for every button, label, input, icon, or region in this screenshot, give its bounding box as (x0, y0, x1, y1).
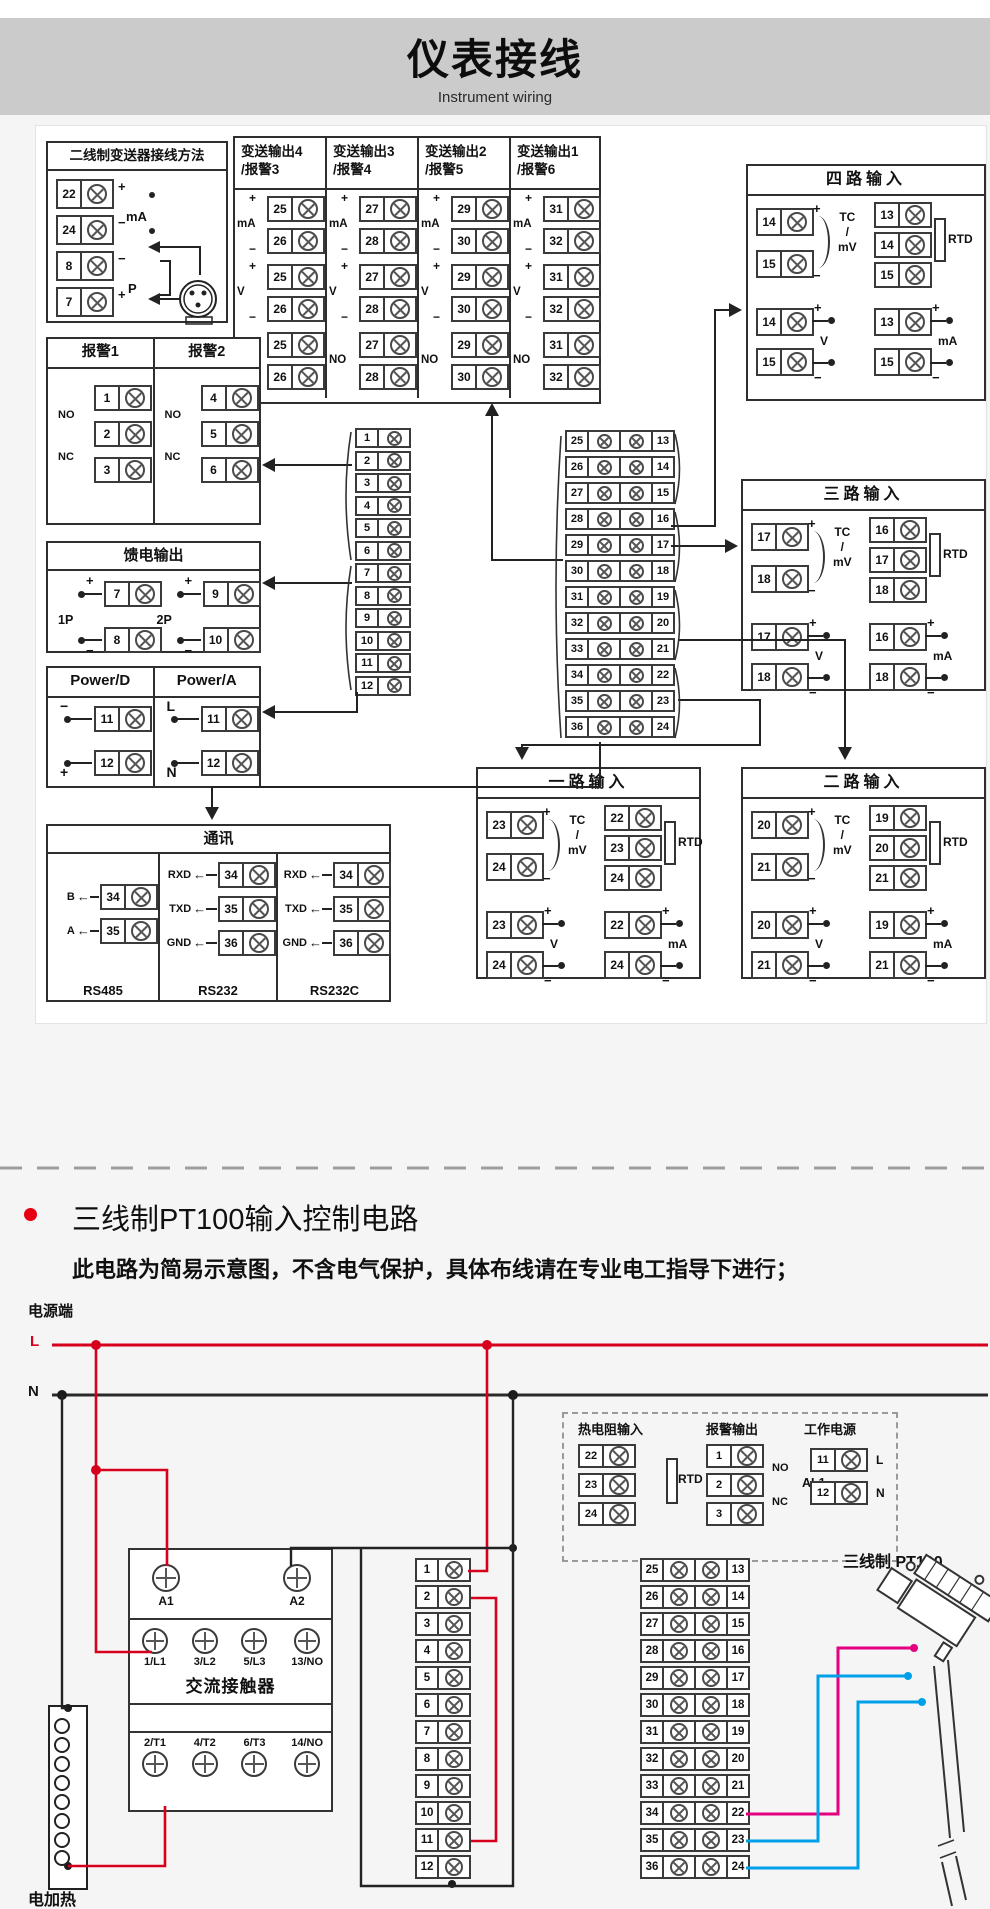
screw-icon (387, 588, 402, 603)
contactor-terminal: 14/NO (291, 1737, 323, 1777)
terminal: 14 (756, 308, 814, 336)
terminal-label: 1/L1 (144, 1656, 166, 1668)
screw-icon (900, 520, 920, 540)
terminal-label: 13/NO (291, 1656, 323, 1668)
rtd-label: RTD (948, 232, 973, 246)
tc-group: 14 15 + − TC / mV (756, 208, 814, 278)
strip-row: 28 16 (565, 508, 675, 530)
terminal-row: 12 N (810, 1481, 885, 1505)
screw-icon (702, 1723, 720, 1741)
terminal-number: 26 (565, 456, 589, 478)
strip-row: 3 (415, 1612, 471, 1636)
screw-icon (445, 1696, 463, 1714)
strip-row: 30 18 (565, 560, 675, 582)
page: 仪表接线 Instrument wiring 二线制变送器接线方法 22 + 2… (0, 0, 990, 1909)
sensor-label: 三线制 PT100 (843, 1548, 943, 1572)
screw-icon (597, 486, 612, 501)
screw-icon (670, 1723, 688, 1741)
screw-icon (517, 857, 537, 877)
terminal: 20 (869, 835, 927, 861)
screw-icon (629, 486, 644, 501)
screw-icon (737, 1504, 757, 1524)
contactor-terminal: 3/L2 (192, 1628, 218, 1668)
coil-label: A1 (158, 1594, 173, 1608)
rtd-group: 16 17 18 RTD (869, 517, 927, 603)
screw-icon (905, 205, 925, 225)
terminal-number: 15 (728, 1612, 750, 1636)
terminal: 24 (486, 951, 544, 979)
terminal-number: 16 (728, 1639, 750, 1663)
screw-icon (445, 1561, 463, 1579)
screw-icon (702, 1588, 720, 1606)
terminal: 14 (756, 208, 814, 236)
strip-row: 28 16 (640, 1639, 750, 1663)
terminal-number: 31 (640, 1720, 664, 1744)
resistor-icon (664, 821, 676, 865)
contactor-terminal: 6/T3 (241, 1737, 267, 1777)
output-terminal-row: 2/T1 4/T2 6/T3 14/NO (130, 1733, 331, 1777)
screw-icon (670, 1858, 688, 1876)
screw-icon (629, 460, 644, 475)
terminal-number: 12 (355, 676, 379, 696)
rtd-input-title: 热电阻输入 (578, 1419, 643, 1438)
terminal-number: 34 (565, 664, 589, 686)
screw-icon (670, 1615, 688, 1633)
strip-row: 2 (415, 1585, 471, 1609)
strip-row: 33 21 (640, 1774, 750, 1798)
terminal-number: 23 (653, 690, 675, 712)
terminal: 23 (486, 811, 544, 839)
screw-icon (702, 1750, 720, 1768)
terminal-row: 11 L (810, 1448, 885, 1472)
screw-icon (900, 627, 920, 647)
screw-icon (609, 1446, 629, 1466)
work-power-terminals: 11 L 12 N (810, 1448, 885, 1514)
screw-icon (597, 642, 612, 657)
coil-terminal: A2 (283, 1564, 311, 1608)
strip-row: 29 17 (640, 1666, 750, 1690)
heater-box (48, 1705, 88, 1890)
strip-row: 27 15 (640, 1612, 750, 1636)
screw-icon (387, 498, 402, 513)
terminal-number: 21 (728, 1774, 750, 1798)
terminal-number: 4 (355, 496, 379, 516)
screw-icon (905, 352, 925, 372)
screw-icon (445, 1831, 463, 1849)
screw-icon (294, 1751, 320, 1777)
v-group: 23 24 + V − (486, 911, 544, 979)
screw-icon (283, 1564, 311, 1592)
terminal-number: 12 (415, 1855, 439, 1879)
screw-icon (629, 668, 644, 683)
terminal: 22 (578, 1444, 636, 1468)
screw-icon (445, 1642, 463, 1660)
screw-icon (702, 1858, 720, 1876)
terminal-label: 5/L3 (243, 1656, 265, 1668)
terminal-number: 1 (415, 1558, 439, 1582)
terminal: 23 (486, 911, 544, 939)
terminal: 13 (874, 202, 932, 228)
terminal: 21 (751, 951, 809, 979)
screw-icon (702, 1669, 720, 1687)
strip-row: 32 20 (565, 612, 675, 634)
terminal-number: 22 (728, 1801, 750, 1825)
screw-icon (670, 1750, 688, 1768)
terminal-number: 8 (415, 1747, 439, 1771)
terminal-strip-1-12: 1 2 3 4 5 6 7 8 9 10 11 12 (415, 1558, 471, 1882)
screw-icon (635, 955, 655, 975)
screw-icon (517, 955, 537, 975)
input-box-title: 一路输入 (478, 769, 699, 799)
terminal: 15 (756, 348, 814, 376)
screw-icon (670, 1777, 688, 1795)
terminal: 18 (751, 663, 809, 691)
terminal-strip-1-12: 1 2 3 4 5 6 7 8 9 10 11 12 (355, 428, 411, 698)
screw-icon (517, 915, 537, 935)
v-group: 20 21 + V − (751, 911, 809, 979)
terminal-number: 6 (415, 1693, 439, 1717)
screw-icon (629, 694, 644, 709)
terminal-number: 3 (355, 473, 379, 493)
screw-icon (445, 1615, 463, 1633)
screw-icon (445, 1588, 463, 1606)
terminal: 20 (751, 811, 809, 839)
screw-icon (900, 838, 920, 858)
screw-icon (900, 808, 920, 828)
terminal-number: 27 (640, 1612, 664, 1636)
screw-icon (152, 1564, 180, 1592)
screw-icon (445, 1858, 463, 1876)
screw-icon (241, 1751, 267, 1777)
rtd-group: 22 23 24 RTD (604, 805, 662, 891)
coil-label: A2 (289, 1594, 304, 1608)
screw-icon (905, 312, 925, 332)
screw-icon (387, 678, 402, 693)
strip-row: 36 24 (565, 716, 675, 738)
ma-group: 16 18 + mA − (869, 623, 927, 691)
terminal-label: 4/T2 (194, 1737, 216, 1749)
strip-row: 8 (415, 1747, 471, 1771)
terminal: 3 (706, 1502, 764, 1526)
strip-row: 29 17 (565, 534, 675, 556)
work-power-title: 工作电源 (804, 1419, 856, 1438)
strip-row: 6 (355, 541, 411, 561)
terminal-number: 15 (653, 482, 675, 504)
terminal: 11 (810, 1448, 868, 1472)
terminal: 13 (874, 308, 932, 336)
terminal: 19 (869, 911, 927, 939)
screw-icon (387, 656, 402, 671)
screw-icon (702, 1615, 720, 1633)
terminal: 17 (869, 547, 927, 573)
screw-icon (629, 590, 644, 605)
terminal-number: 3 (415, 1612, 439, 1636)
screw-icon (702, 1696, 720, 1714)
screw-icon (387, 633, 402, 648)
screw-icon (900, 868, 920, 888)
terminal-number: 18 (653, 560, 675, 582)
screw-icon (737, 1475, 757, 1495)
strip-row: 5 (415, 1666, 471, 1690)
strip-row: 26 14 (565, 456, 675, 478)
screw-icon (782, 915, 802, 935)
screw-icon (702, 1777, 720, 1795)
screw-icon (445, 1750, 463, 1768)
ma-group: 19 21 + mA − (869, 911, 927, 979)
terminal-number: 11 (355, 653, 379, 673)
screw-icon (142, 1751, 168, 1777)
terminal: 24 (604, 951, 662, 979)
screw-icon (670, 1561, 688, 1579)
screw-icon (670, 1696, 688, 1714)
strip-row: 11 (355, 653, 411, 673)
terminal-number: 31 (565, 586, 589, 608)
screw-icon (782, 569, 802, 589)
screw-icon (597, 460, 612, 475)
terminal-number: 20 (653, 612, 675, 634)
terminal-number: 2 (355, 451, 379, 471)
nc-label: NC (772, 1496, 788, 1508)
terminal-number: 29 (640, 1666, 664, 1690)
line-l-label: L (30, 1333, 39, 1350)
terminal: 15 (874, 262, 932, 288)
terminal-number: 14 (653, 456, 675, 478)
screw-icon (782, 857, 802, 877)
brace (546, 819, 560, 871)
screw-icon (597, 720, 612, 735)
terminal: 21 (869, 865, 927, 891)
screw-icon (597, 668, 612, 683)
tc-mv-label: TC / mV (838, 210, 857, 255)
strip-row: 7 (415, 1720, 471, 1744)
strip-row: 25 13 (640, 1558, 750, 1582)
screw-icon (900, 550, 920, 570)
terminal: 14 (874, 232, 932, 258)
screw-icon (387, 543, 402, 558)
terminal: 23 (604, 835, 662, 861)
terminal-number: 18 (728, 1693, 750, 1717)
v-group: 17 18 + V − (751, 623, 809, 691)
screw-icon (192, 1628, 218, 1654)
terminal: 24 (604, 865, 662, 891)
screw-icon (702, 1804, 720, 1822)
screw-icon (241, 1628, 267, 1654)
ma-group: 13 15 + mA − (874, 308, 932, 376)
terminal-number: 10 (415, 1801, 439, 1825)
terminal-label: 3/L2 (194, 1656, 216, 1668)
terminal-number: 36 (565, 716, 589, 738)
screw-icon (629, 434, 644, 449)
screw-icon (900, 667, 920, 687)
terminal: 24 (578, 1502, 636, 1526)
terminal: 2 (706, 1473, 764, 1497)
screw-icon (782, 627, 802, 647)
coil-row: A1 A2 (130, 1550, 331, 1608)
resistor-icon (929, 533, 941, 577)
terminal-number: 26 (640, 1585, 664, 1609)
terminal-number: 14 (728, 1585, 750, 1609)
screw-icon (192, 1751, 218, 1777)
terminal-number: 7 (415, 1720, 439, 1744)
strip-row: 34 22 (640, 1801, 750, 1825)
no-label: NO (772, 1462, 789, 1474)
terminal: 24 (486, 853, 544, 881)
terminal: 23 (578, 1473, 636, 1497)
rtd-terminals: 222324 (578, 1444, 636, 1526)
terminal-number: 29 (565, 534, 589, 556)
screw-icon (702, 1642, 720, 1660)
terminal-number: 25 (640, 1558, 664, 1582)
contactor-terminal: 4/T2 (192, 1737, 218, 1777)
terminal-number: 2 (415, 1585, 439, 1609)
terminal-number: 30 (565, 560, 589, 582)
screw-icon (517, 815, 537, 835)
terminal-number: 16 (653, 508, 675, 530)
strip-row: 3 (355, 473, 411, 493)
strip-row: 33 21 (565, 638, 675, 660)
screw-icon (597, 564, 612, 579)
input-box-title: 三路输入 (743, 481, 984, 511)
input-box-title: 四路输入 (748, 166, 984, 196)
terminal-number: 34 (640, 1801, 664, 1825)
resistor-icon (929, 821, 941, 865)
screw-icon (445, 1669, 463, 1687)
screw-icon (597, 434, 612, 449)
input-box: 四路输入 14 15 + − TC / mV (746, 164, 986, 401)
rtd-group: 19 20 21 RTD (869, 805, 927, 891)
terminal: 20 (751, 911, 809, 939)
strip-row: 25 13 (565, 430, 675, 452)
strip-row: 32 20 (640, 1747, 750, 1771)
rtd-label: RTD (943, 835, 968, 849)
screw-icon (387, 476, 402, 491)
terminal-number: 19 (653, 586, 675, 608)
screw-icon (787, 254, 807, 274)
brace (811, 819, 825, 871)
line-label: L (876, 1453, 883, 1467)
input-box: 三路输入 17 18 + − TC / mV (741, 479, 986, 691)
screw-icon (670, 1669, 688, 1687)
strip-row: 31 19 (640, 1720, 750, 1744)
screw-icon (900, 915, 920, 935)
alarm-output-title: 报警输出 (706, 1419, 758, 1438)
terminal-number: 9 (415, 1774, 439, 1798)
rtd-label: RTD (943, 547, 968, 561)
terminal-number: 27 (565, 482, 589, 504)
brace (816, 216, 830, 268)
terminal-label: 14/NO (291, 1737, 323, 1749)
terminal: 12 (810, 1481, 868, 1505)
line-label: N (876, 1486, 885, 1500)
terminal-label: 2/T1 (144, 1737, 166, 1749)
screw-icon (445, 1777, 463, 1795)
terminal: 1 (706, 1444, 764, 1468)
terminal-strip-25-36-13-24: 25 13 26 14 27 15 28 (565, 430, 675, 742)
resistor-icon (666, 1458, 678, 1504)
contactor-terminal: 13/NO (291, 1628, 323, 1668)
terminal-number: 5 (355, 518, 379, 538)
terminal-number: 24 (653, 716, 675, 738)
strip-row: 36 24 (640, 1855, 750, 1879)
tc-mv-label: TC / mV (833, 525, 852, 570)
screw-icon (841, 1483, 861, 1503)
screw-icon (782, 527, 802, 547)
terminal: 18 (751, 565, 809, 593)
v-group: 14 15 + V − (756, 308, 814, 376)
screw-icon (670, 1831, 688, 1849)
screw-icon (900, 955, 920, 975)
wiring-diagram-panel: 二线制变送器接线方法 22 + 24 − 8 − 7 (35, 125, 987, 1024)
contactor-name: 交流接触器 (130, 1672, 331, 1697)
contactor-terminal: 1/L1 (142, 1628, 168, 1668)
screw-icon (445, 1723, 463, 1741)
screw-icon (387, 611, 402, 626)
strip-row: 9 (355, 608, 411, 628)
terminal-number: 22 (653, 664, 675, 686)
screw-icon (670, 1804, 688, 1822)
terminal: 15 (874, 348, 932, 376)
screw-icon (737, 1446, 757, 1466)
strip-row: 31 19 (565, 586, 675, 608)
screw-icon (597, 538, 612, 553)
terminal-number: 7 (355, 563, 379, 583)
terminal-number: 35 (565, 690, 589, 712)
screw-icon (387, 431, 402, 446)
screw-icon (597, 512, 612, 527)
screw-icon (787, 212, 807, 232)
input-box-title: 二路输入 (743, 769, 984, 799)
terminal-label: 6/T3 (243, 1737, 265, 1749)
strip-row: 11 (415, 1828, 471, 1852)
terminal-number: 13 (653, 430, 675, 452)
screw-icon (635, 868, 655, 888)
strip-row: 34 22 (565, 664, 675, 686)
terminal-number: 21 (653, 638, 675, 660)
screw-icon (629, 642, 644, 657)
strip-row: 30 18 (640, 1693, 750, 1717)
terminal-number: 28 (565, 508, 589, 530)
terminal: 19 (869, 805, 927, 831)
terminal-number: 24 (728, 1855, 750, 1879)
input-box: 一路输入 23 24 + − TC / mV (476, 767, 701, 979)
terminal: 15 (756, 250, 814, 278)
strip-row: 8 (355, 586, 411, 606)
terminal: 21 (751, 853, 809, 881)
ma-group: 22 24 + mA − (604, 911, 662, 979)
strip-row: 2 (355, 451, 411, 471)
screw-icon (787, 312, 807, 332)
strip-row: 26 14 (640, 1585, 750, 1609)
strip-row: 1 (355, 428, 411, 448)
strip-row: 9 (415, 1774, 471, 1798)
screw-icon (609, 1475, 629, 1495)
input-boxes: 四路输入 14 15 + − TC / mV (1, 1, 990, 1023)
terminal-number: 19 (728, 1720, 750, 1744)
red-bullet-icon (24, 1208, 37, 1221)
strip-row: 4 (355, 496, 411, 516)
strip-row: 1 (415, 1558, 471, 1582)
screw-icon (782, 667, 802, 687)
terminal: 18 (869, 663, 927, 691)
terminal-number: 6 (355, 541, 379, 561)
screw-icon (387, 566, 402, 581)
screw-icon (629, 720, 644, 735)
terminal-number: 35 (640, 1828, 664, 1852)
screw-icon (900, 580, 920, 600)
strip-row: 12 (355, 676, 411, 696)
screw-icon (635, 838, 655, 858)
terminal-number: 32 (565, 612, 589, 634)
